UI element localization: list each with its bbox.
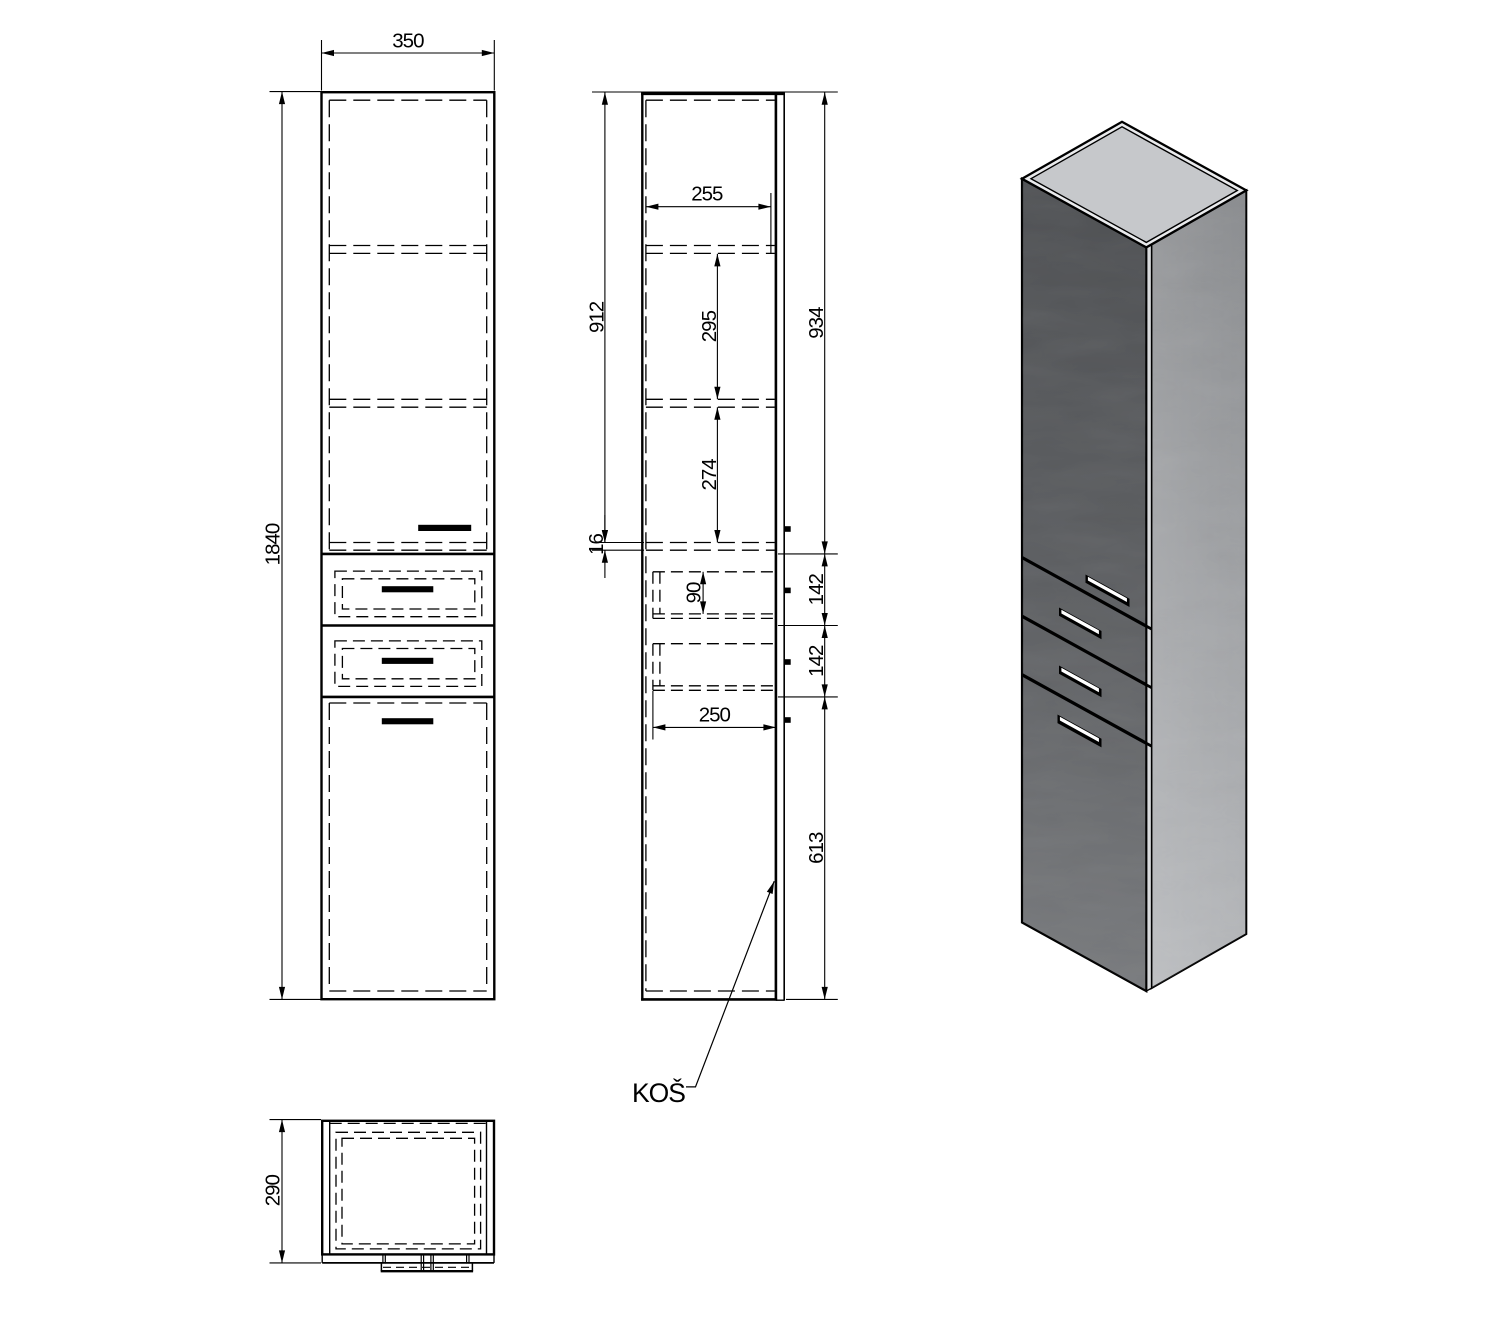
svg-text:255: 255 xyxy=(691,182,723,205)
svg-text:295: 295 xyxy=(698,310,721,342)
svg-text:290: 290 xyxy=(262,1175,285,1207)
svg-text:142: 142 xyxy=(805,574,828,606)
svg-text:613: 613 xyxy=(805,832,828,864)
svg-text:1840: 1840 xyxy=(262,523,285,565)
svg-text:274: 274 xyxy=(698,459,721,491)
svg-text:934: 934 xyxy=(805,307,828,339)
svg-text:16: 16 xyxy=(585,534,608,555)
svg-text:250: 250 xyxy=(699,703,731,726)
svg-text:KOŠ: KOŠ xyxy=(632,1078,685,1108)
svg-text:142: 142 xyxy=(805,645,828,677)
svg-text:90: 90 xyxy=(683,582,706,603)
svg-text:912: 912 xyxy=(585,301,608,333)
svg-text:350: 350 xyxy=(392,30,424,53)
